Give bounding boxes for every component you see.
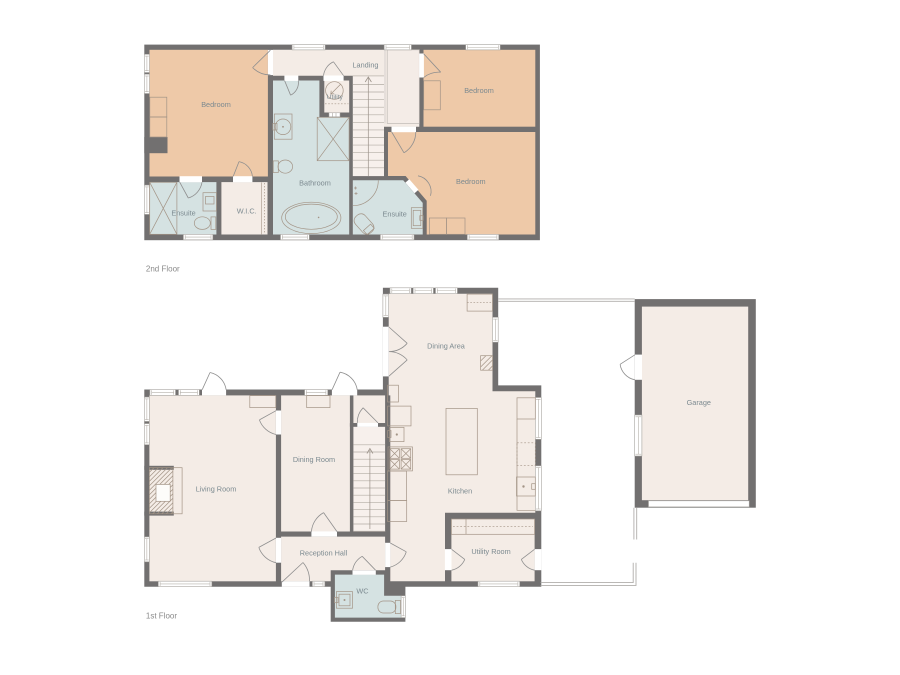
svg-text:Landing: Landing (353, 60, 379, 69)
svg-text:2nd Floor: 2nd Floor (146, 265, 180, 274)
svg-text:Ensuite: Ensuite (383, 210, 407, 219)
svg-text:1st Floor: 1st Floor (146, 612, 177, 621)
svg-text:Garage: Garage (687, 398, 711, 407)
svg-text:Bedroom: Bedroom (464, 86, 494, 95)
svg-text:Bedroom: Bedroom (201, 100, 231, 109)
svg-text:Utility Room: Utility Room (471, 547, 510, 556)
svg-text:Living Room: Living Room (196, 485, 237, 494)
svg-text:WC: WC (356, 587, 368, 596)
svg-text:Kitchen: Kitchen (448, 487, 472, 496)
svg-text:W.I.C.: W.I.C. (237, 206, 257, 215)
svg-text:Ensuite: Ensuite (171, 209, 195, 218)
svg-text:Dining Area: Dining Area (427, 342, 466, 351)
svg-text:Bedroom: Bedroom (456, 177, 486, 186)
svg-text:Dining Room: Dining Room (293, 455, 335, 464)
svg-text:Reception Hall: Reception Hall (300, 549, 348, 558)
svg-text:Bathroom: Bathroom (299, 179, 331, 188)
svg-text:Utility: Utility (327, 94, 344, 101)
